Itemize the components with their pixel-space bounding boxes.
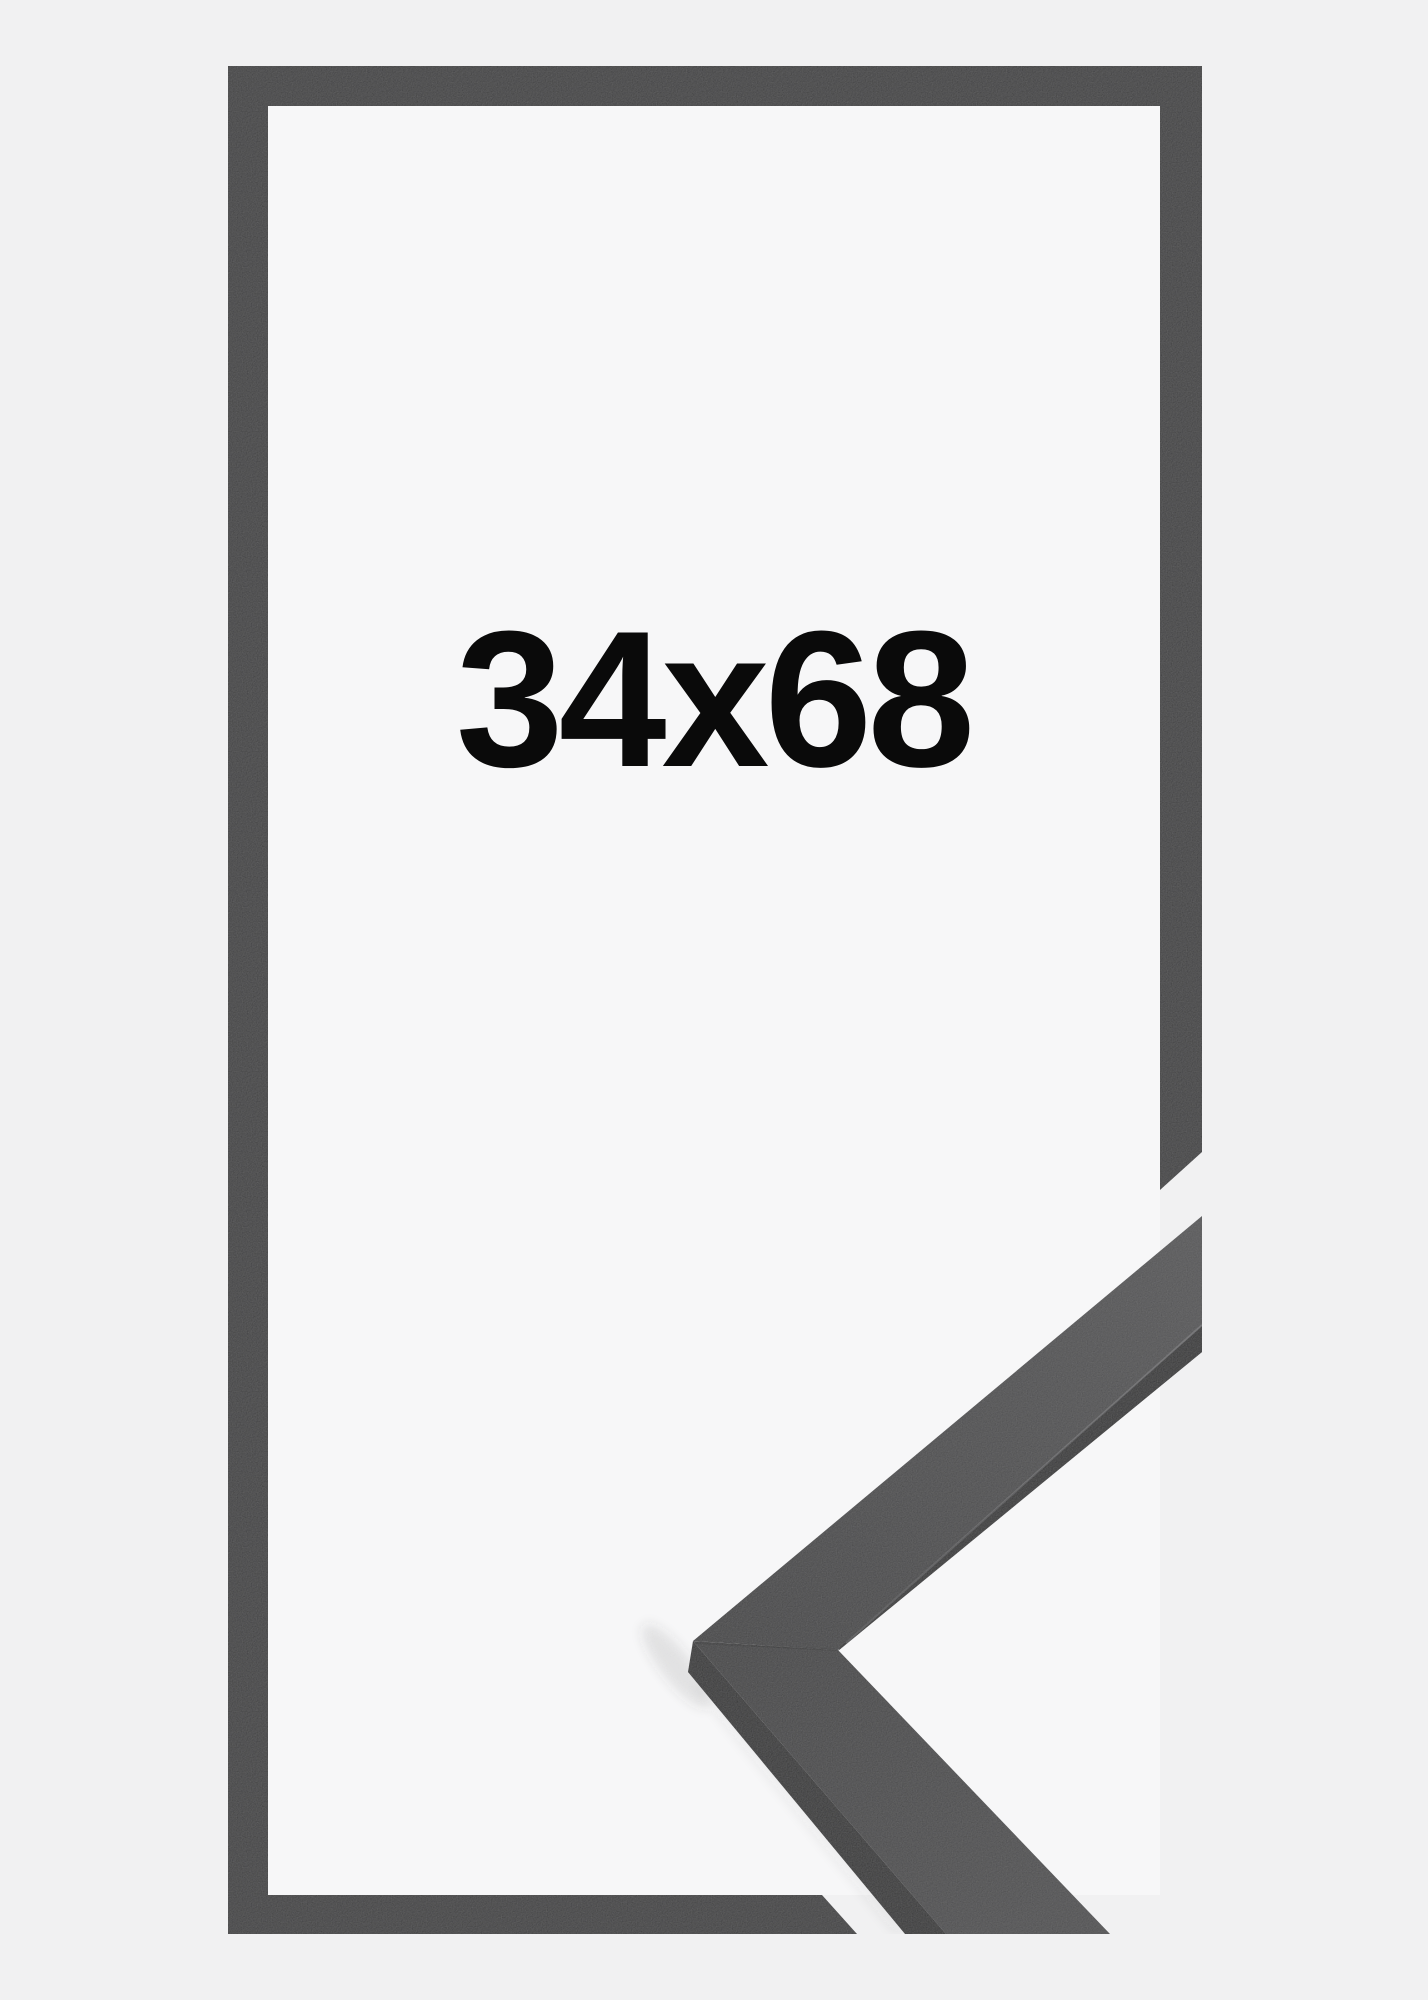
- frame-product-image: 34x68: [0, 0, 1428, 2000]
- frame-size-graphic: 34x68: [0, 0, 1428, 2000]
- size-label: 34x68: [456, 591, 970, 808]
